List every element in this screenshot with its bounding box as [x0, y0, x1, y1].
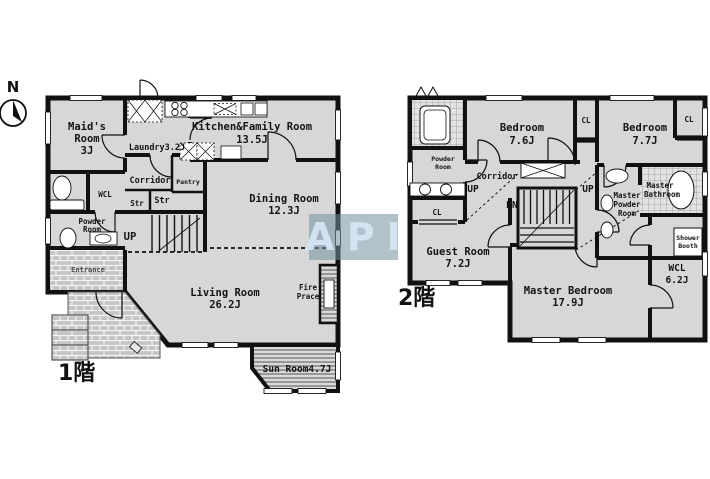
watermark-text: API — [305, 215, 412, 259]
kitchen-label: Kitchen&Family Room — [192, 121, 312, 133]
sink-icon — [95, 234, 111, 243]
powder-room-label2: Room — [83, 225, 102, 234]
fireplace-icon — [320, 265, 338, 323]
dining-room-size: 12.3J — [268, 205, 300, 217]
master-powder-label2: Powder — [613, 200, 641, 209]
floor1-label: 1階 — [58, 361, 95, 386]
vent-icon — [428, 87, 438, 96]
bathtub-icon — [50, 200, 84, 210]
bedroom2-size: 7.7J — [632, 135, 657, 147]
watermark: API — [305, 214, 412, 260]
kitchen-size: 13.5J — [236, 134, 268, 146]
pantry-label: Pantry — [176, 178, 200, 186]
compass: N — [0, 78, 26, 126]
floorplan-page: N — [0, 0, 710, 479]
master-powder-label3: Room — [618, 209, 637, 218]
corridor2-label: Corridor — [477, 171, 518, 182]
bedroom2-label: Bedroom — [623, 122, 667, 134]
stairs-up-label: UP — [124, 231, 137, 243]
sunroom-label: Sun Room4.7J — [263, 364, 332, 375]
kitchen-counter — [165, 101, 267, 117]
floor2-plan: Powder Room Bedroom 7.6J CL Bedroom 7.7J… — [398, 87, 708, 343]
maids-room-size: 3J — [81, 145, 94, 157]
shower-booth-label: Shower — [676, 234, 700, 242]
master-bedroom-label: Master Bedroom — [524, 285, 613, 297]
floor2-label: 2階 — [398, 286, 435, 311]
laundry-label: Laundry3.2J — [129, 143, 185, 153]
toilet-icon — [601, 195, 613, 211]
cl3-label: CL — [432, 208, 442, 217]
living-room-size: 26.2J — [209, 299, 241, 311]
cl1-label: CL — [581, 116, 591, 125]
corridor-label: Corridor — [130, 175, 171, 186]
up2-label: UP — [582, 184, 594, 195]
maids-room-label: Maid's — [68, 121, 106, 133]
powder-room2-label: Powder — [431, 155, 455, 163]
sink-icon — [606, 169, 628, 183]
dining-room-label: Dining Room — [249, 193, 319, 205]
guest-room-label: Guest Room — [426, 246, 489, 258]
str2-label: Str — [154, 196, 169, 206]
toilet-icon — [60, 228, 76, 248]
vanity-sinks — [410, 183, 465, 196]
laundry-counter — [128, 100, 162, 122]
bathtub-icon — [420, 106, 450, 144]
living-room-label: Living Room — [190, 287, 260, 299]
str1-label: Str — [130, 199, 144, 208]
dn-label: DN — [506, 200, 518, 211]
master-bath-label: Master — [646, 181, 674, 190]
toilet-icon — [601, 222, 613, 238]
vent-icon — [416, 87, 426, 96]
fireplace-label: Fire — [299, 283, 318, 292]
entrance-steps — [52, 315, 88, 360]
floorplan-canvas: N — [0, 0, 710, 479]
master-powder-label: Master — [613, 191, 641, 200]
wcl-label: WCL — [98, 190, 112, 199]
guest-room-size: 7.2J — [445, 258, 470, 270]
wcl2-label: WCL — [668, 263, 685, 274]
wcl2-size: 6.2J — [666, 275, 689, 286]
bedroom1-size: 7.6J — [509, 135, 534, 147]
master-bedroom-size: 17.9J — [552, 297, 584, 309]
cl2-label: CL — [684, 115, 694, 124]
floor1-plan: Maid's Room 3J Laundry3.2J Kitchen&Famil… — [46, 80, 341, 394]
master-bath-label2: Bathroom — [644, 190, 681, 199]
maids-room-label2: Room — [74, 133, 99, 145]
entrance-label: Entrance — [71, 266, 105, 274]
toilet-icon — [53, 176, 71, 200]
bedroom1-label: Bedroom — [500, 122, 544, 134]
shower-booth-label2: Booth — [678, 242, 698, 250]
up1-label: UP — [467, 184, 479, 195]
powder-room2-label2: Room — [435, 163, 451, 171]
fireplace-label2: Prace — [297, 292, 320, 301]
compass-north-label: N — [7, 78, 20, 96]
